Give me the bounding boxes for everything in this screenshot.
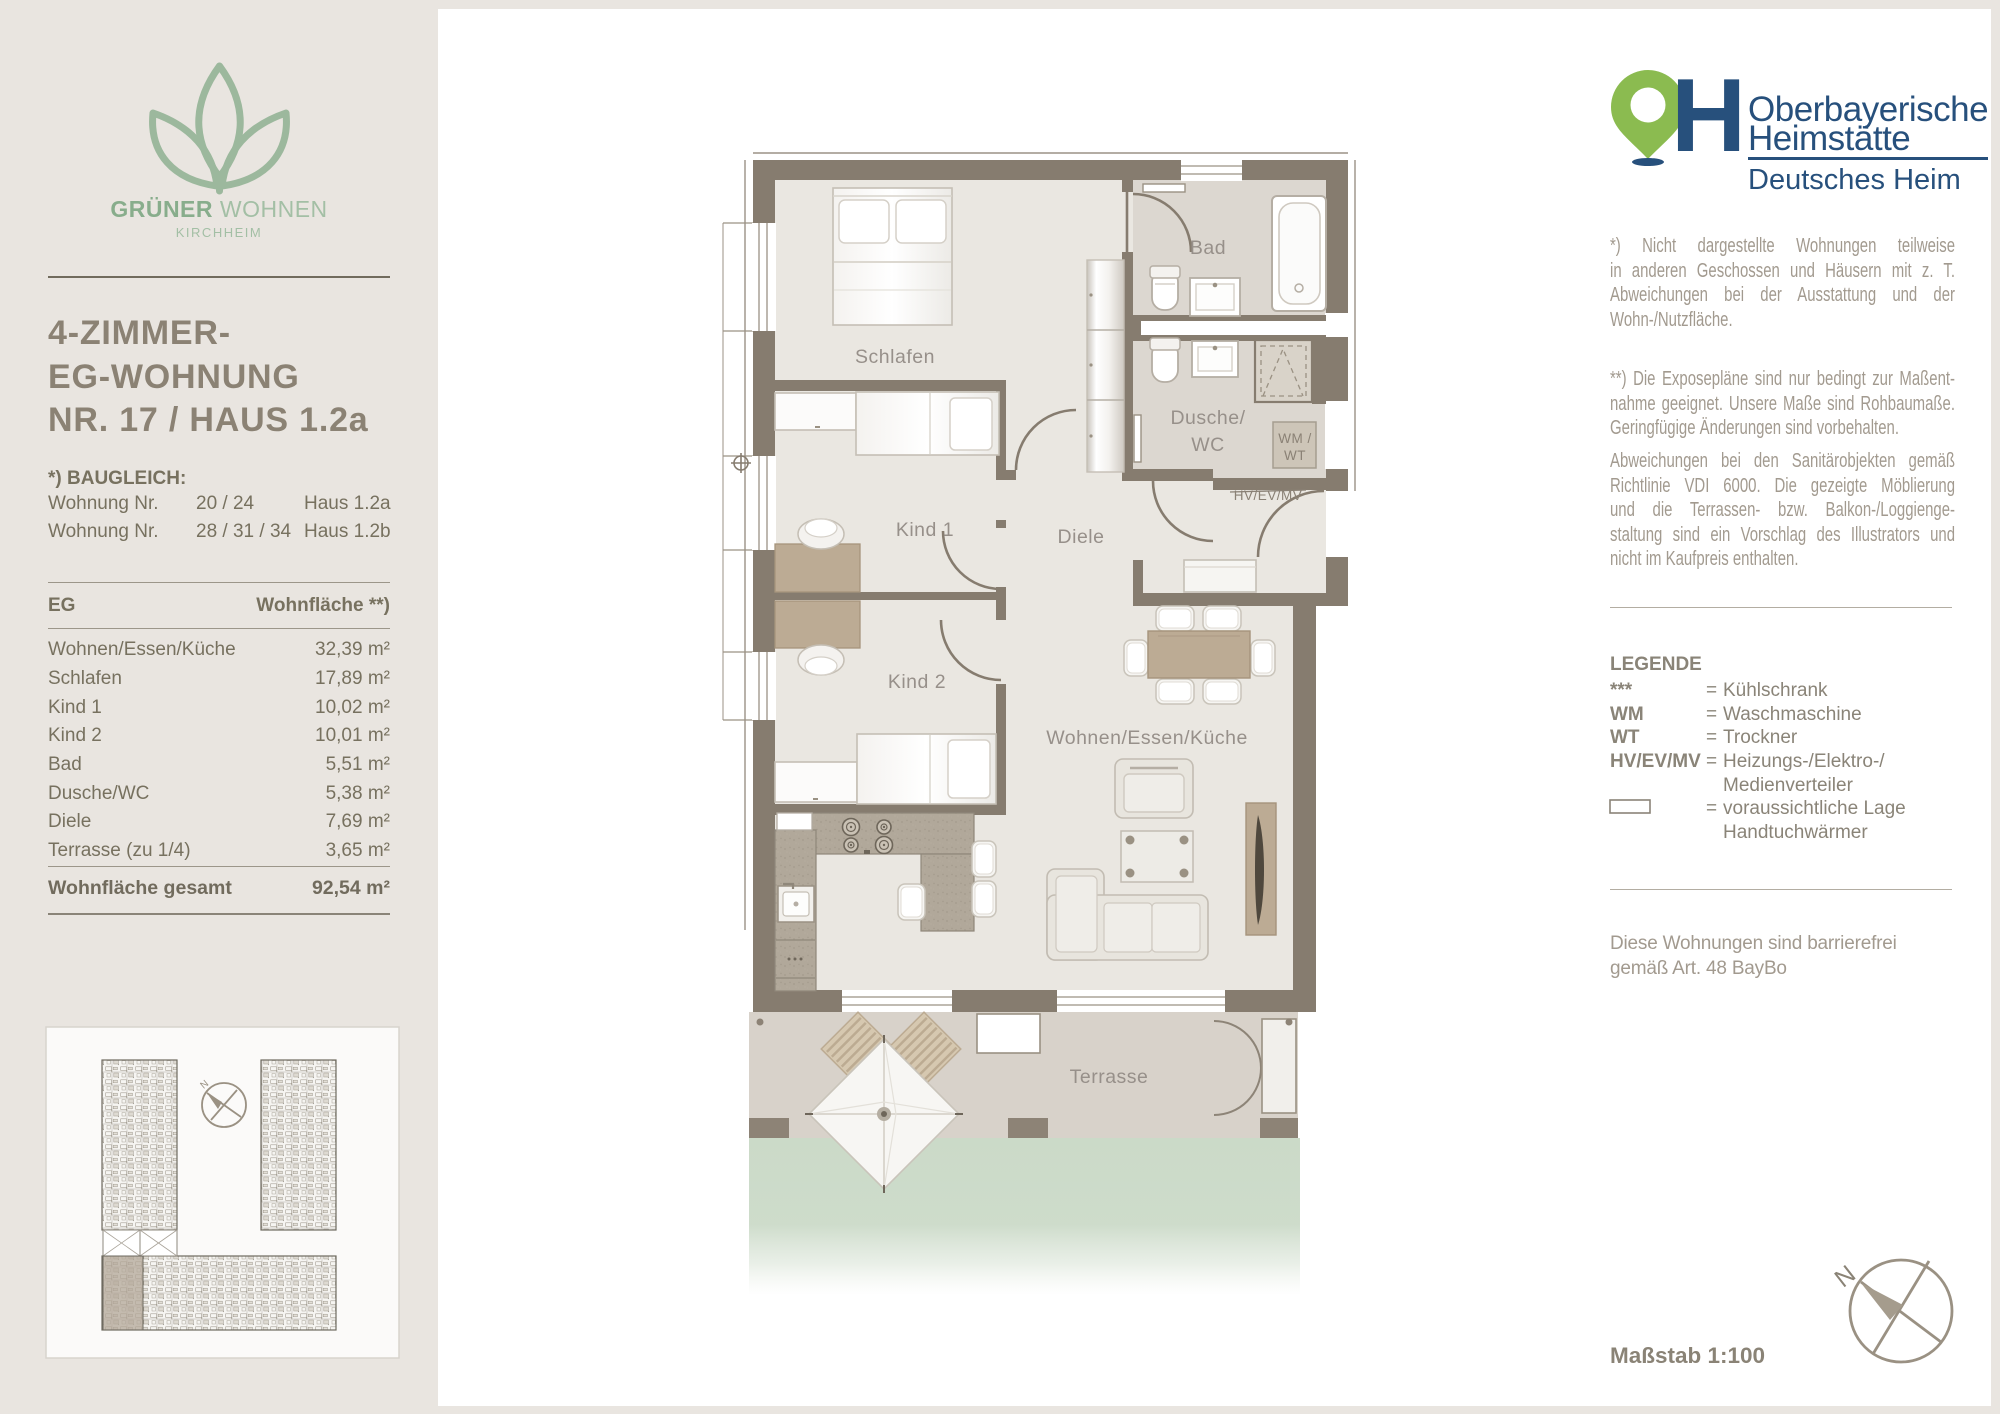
- svg-text:Wohnen/Essen/Küche: Wohnen/Essen/Küche: [1046, 727, 1248, 749]
- svg-text:Kind 2: Kind 2: [888, 671, 946, 693]
- svg-text:Kind 1: Kind 1: [896, 519, 954, 541]
- svg-text:Terrasse: Terrasse: [1070, 1066, 1149, 1088]
- svg-text:Bad: Bad: [1190, 237, 1226, 259]
- svg-text:WC: WC: [1191, 434, 1225, 456]
- svg-text:Diele: Diele: [1058, 526, 1105, 548]
- svg-text:Schlafen: Schlafen: [855, 346, 935, 368]
- svg-text:H: H: [1671, 58, 1746, 174]
- svg-text:WM /: WM /: [1278, 431, 1312, 446]
- svg-text:WT: WT: [1284, 448, 1306, 463]
- svg-text:Dusche/: Dusche/: [1170, 407, 1245, 429]
